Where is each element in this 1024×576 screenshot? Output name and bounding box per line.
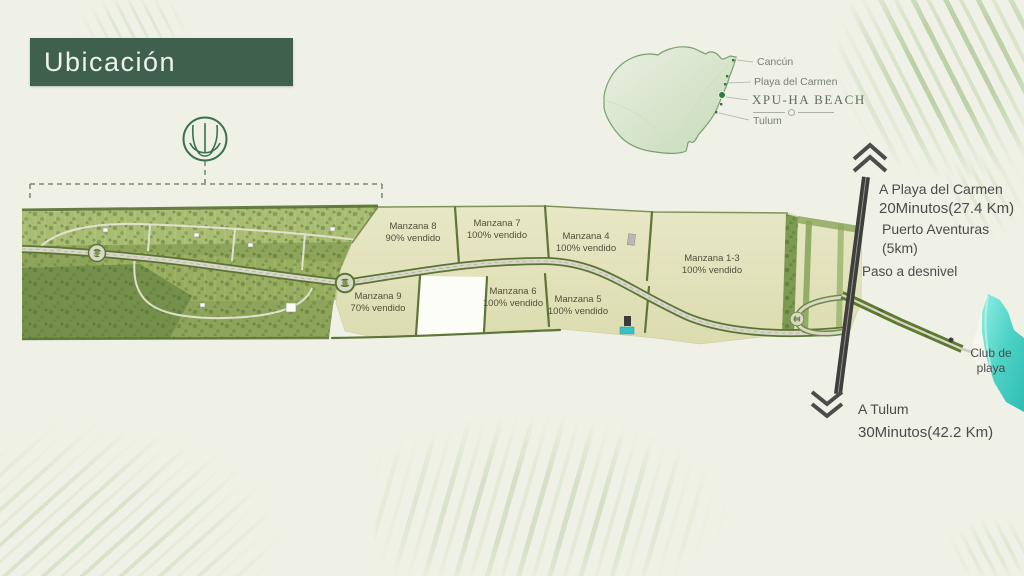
south-direction-label: A Tulum 30Minutos(42.2 Km): [858, 398, 993, 444]
manzana-8-label: Manzana 8 90% vendido: [371, 221, 455, 245]
xpuha-emblem-icon: [184, 118, 227, 161]
brush-stroke-decoration: [375, 415, 725, 576]
brush-stroke-decoration: [838, 0, 1024, 177]
puerto-aventuras-label: Puerto Aventuras (5km): [882, 220, 1024, 258]
brush-stroke-decoration: [945, 515, 1024, 576]
manzana-9-label: Manzana 9 70% vendido: [336, 291, 420, 315]
manzana-4-label: Manzana 4 100% vendido: [544, 231, 628, 255]
page-title-text: Ubicación: [30, 47, 176, 78]
left-site-plan: [22, 206, 378, 340]
xpuha-location-dot: [719, 92, 726, 99]
north-direction-label: A Playa del Carmen 20Minutos(27.4 Km): [879, 180, 1014, 218]
chevron-down-icon: [812, 392, 842, 416]
manzana-1-3-label: Manzana 1-3 100% vendido: [670, 253, 754, 277]
chevron-up-icon: [854, 145, 886, 171]
roundabout-icon: [336, 274, 354, 292]
pool-building-icon: [620, 316, 634, 334]
site-extent-bracket: [30, 161, 382, 201]
minimap-label-xpuha: XPU-HA BEACH: [752, 92, 866, 108]
highway: [838, 177, 866, 394]
manzana-7-label: Manzana 7 100% vendido: [455, 218, 539, 242]
minimap-label-tulum: Tulum: [753, 115, 782, 127]
manzana-5-label: Manzana 5 100% vendido: [536, 294, 620, 318]
location-slide: Ubicación: [0, 0, 1024, 576]
brush-stroke-decoration: [0, 425, 285, 576]
interchange: [791, 297, 847, 333]
minimap-label-playa-del-carmen: Playa del Carmen: [754, 76, 837, 88]
paso-desnivel-label: Paso a desnivel: [862, 262, 957, 281]
roundabout-icon: [89, 245, 105, 261]
building-icon: [627, 234, 635, 246]
beach-club-label: Club de playa: [966, 346, 1016, 376]
page-title: Ubicación: [30, 38, 293, 86]
minimap-graphic: [604, 47, 753, 154]
minimap-label-cancun: Cancún: [757, 56, 793, 68]
club-building-icon: [949, 338, 954, 343]
